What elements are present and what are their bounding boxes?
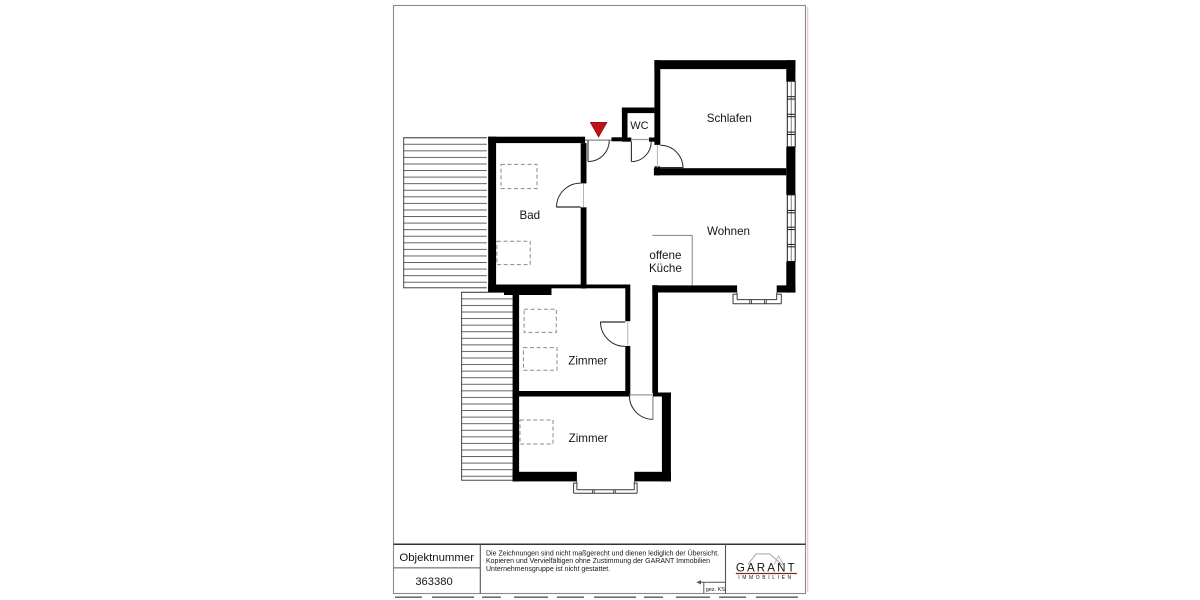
svg-text:Kopieren und Vervielfältigen o: Kopieren und Vervielfältigen ohne Zustim…	[486, 558, 710, 565]
svg-text:Wohnen: Wohnen	[707, 225, 750, 238]
svg-text:Schlafen: Schlafen	[707, 112, 752, 125]
svg-text:offene: offene	[649, 249, 681, 262]
svg-text:Objektnummer: Objektnummer	[399, 552, 474, 564]
svg-text:WC: WC	[630, 120, 648, 132]
svg-text:gez. KS: gez. KS	[706, 587, 726, 593]
svg-text:Zimmer: Zimmer	[569, 432, 608, 445]
svg-text:Küche: Küche	[649, 262, 682, 275]
svg-text:Die Zeichnungen sind nicht maß: Die Zeichnungen sind nicht maßgerecht un…	[486, 549, 719, 557]
svg-text:Zimmer: Zimmer	[568, 355, 607, 368]
svg-text:GARANT: GARANT	[736, 561, 797, 574]
svg-text:Bad: Bad	[519, 209, 540, 222]
svg-text:IMMOBILIEN: IMMOBILIEN	[738, 575, 793, 581]
svg-text:Unternehmensgruppe ist nicht g: Unternehmensgruppe ist nicht gestattet.	[486, 566, 610, 573]
svg-text:363380: 363380	[415, 576, 452, 588]
